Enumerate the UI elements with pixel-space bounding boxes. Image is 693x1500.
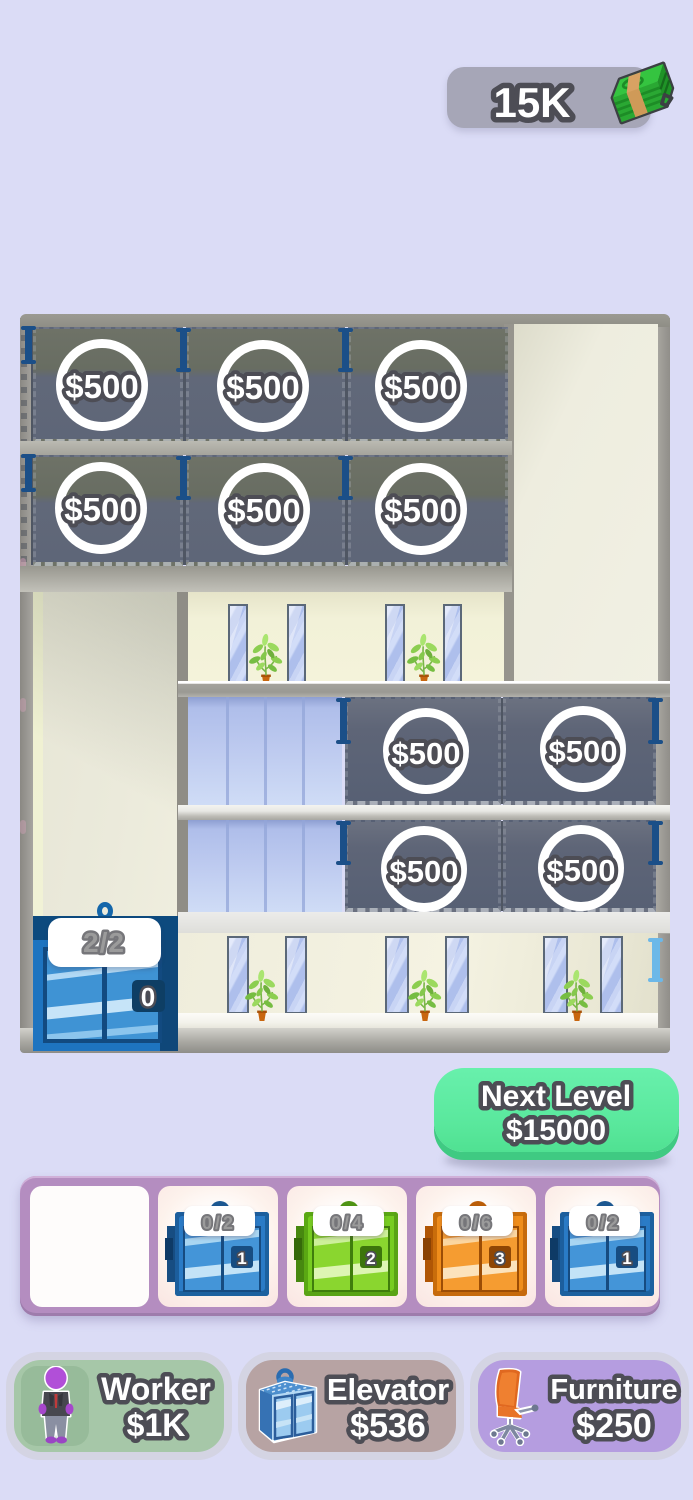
svg-text:2: 2 xyxy=(366,1249,375,1268)
svg-text:1: 1 xyxy=(622,1249,631,1268)
svg-text:0/4: 0/4 xyxy=(331,1213,365,1233)
svg-text:2/2: 2/2 xyxy=(83,927,125,958)
svg-text:0/2: 0/2 xyxy=(202,1213,236,1233)
svg-text:$1K: $1K xyxy=(127,1407,186,1443)
svg-text:$500: $500 xyxy=(227,492,300,529)
svg-text:$536: $536 xyxy=(350,1407,426,1445)
svg-text:$15000: $15000 xyxy=(506,1114,606,1147)
svg-text:Next Level: Next Level xyxy=(481,1080,631,1113)
svg-text:0/2: 0/2 xyxy=(587,1213,621,1233)
svg-text:$500: $500 xyxy=(549,734,618,769)
svg-text:3: 3 xyxy=(495,1249,504,1268)
svg-text:0/6: 0/6 xyxy=(460,1213,494,1233)
svg-text:$500: $500 xyxy=(65,368,138,405)
svg-text:$500: $500 xyxy=(390,854,459,889)
svg-text:$500: $500 xyxy=(226,369,299,406)
svg-text:Worker: Worker xyxy=(101,1371,211,1407)
svg-text:1: 1 xyxy=(237,1249,246,1268)
svg-text:Furniture: Furniture xyxy=(550,1374,677,1406)
svg-text:$500: $500 xyxy=(384,492,457,529)
svg-text:$250: $250 xyxy=(576,1407,652,1445)
svg-text:$500: $500 xyxy=(392,736,461,771)
svg-text:$500: $500 xyxy=(547,853,616,888)
svg-text:Elevator: Elevator xyxy=(327,1372,449,1407)
svg-text:0: 0 xyxy=(141,982,155,1012)
svg-text:$500: $500 xyxy=(384,369,457,406)
svg-text:$500: $500 xyxy=(64,491,137,528)
